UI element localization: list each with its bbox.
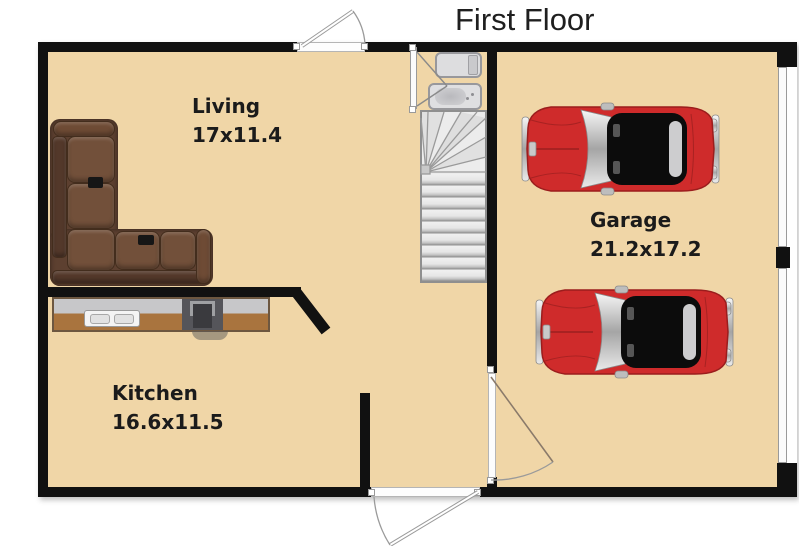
faucet-dot (471, 93, 474, 96)
sink-basin (114, 314, 134, 324)
room-dimensions: 16.6x11.5 (112, 408, 224, 437)
entry-door-top (297, 42, 365, 52)
sink-icon (84, 310, 140, 327)
sofa-armrest (53, 121, 115, 137)
door-jamb (409, 106, 416, 113)
stove-shadow (192, 331, 228, 340)
garage-interior-door (488, 373, 496, 478)
wall-top (38, 42, 298, 52)
stair-treads (422, 174, 485, 281)
room-dimensions: 17x11.4 (192, 121, 282, 150)
sofa-cushion (67, 183, 115, 229)
room-name: Living (192, 92, 282, 121)
kitchen-counter-icon (52, 297, 270, 332)
sofa-remote (88, 177, 103, 188)
stove-icon (182, 299, 223, 330)
door-jamb (368, 489, 375, 496)
sofa-armrest (196, 229, 211, 284)
room-label-garage: Garage 21.2x17.2 (590, 206, 702, 264)
room-dimensions: 21.2x17.2 (590, 235, 702, 264)
wall-kitchen-divider (48, 287, 301, 297)
room-label-kitchen: Kitchen 16.6x11.5 (112, 379, 224, 437)
door-jamb (474, 489, 481, 496)
sofa-cushion (67, 229, 115, 271)
stairs-icon (420, 110, 487, 283)
wall-corner (777, 42, 797, 67)
sofa-backrest (52, 136, 67, 258)
bathroom-door (410, 47, 417, 109)
garage-door-upper (778, 67, 787, 247)
door-jamb (361, 43, 368, 50)
wall-entry-stub (360, 393, 370, 490)
room-name: Garage (590, 206, 702, 235)
sofa-backrest (52, 270, 211, 284)
wall-top (364, 42, 777, 52)
wall-left (38, 42, 48, 497)
room-name: Kitchen (112, 379, 224, 408)
bathtub-basin (435, 88, 466, 105)
garage-door-lower (778, 268, 787, 463)
door-jamb (487, 366, 494, 373)
door-jamb (293, 43, 300, 50)
sofa-icon (50, 119, 213, 286)
floor-plan: First Floor (0, 0, 799, 546)
wall-bottom (479, 487, 777, 497)
entry-door-bottom (371, 487, 480, 497)
room-label-living: Living 17x11.4 (192, 92, 282, 150)
toilet-tank (468, 55, 478, 75)
toilet-icon (435, 52, 482, 78)
faucet-dot (466, 97, 469, 100)
sofa-remote (138, 235, 154, 245)
stove-core (193, 304, 212, 328)
sofa-cushion (160, 231, 196, 270)
door-swing-top (302, 11, 365, 46)
wall-garage-divider (487, 50, 497, 373)
wall-bottom (38, 487, 372, 497)
sofa-cushion (67, 136, 115, 183)
door-jamb (409, 44, 416, 51)
page-title: First Floor (455, 2, 595, 38)
wall-corner (777, 463, 797, 497)
door-jamb (487, 477, 494, 484)
wall-garage-post (776, 247, 790, 268)
door-swing-bottom (374, 492, 478, 545)
bathtub-icon (428, 83, 482, 110)
sink-basin (90, 314, 110, 324)
